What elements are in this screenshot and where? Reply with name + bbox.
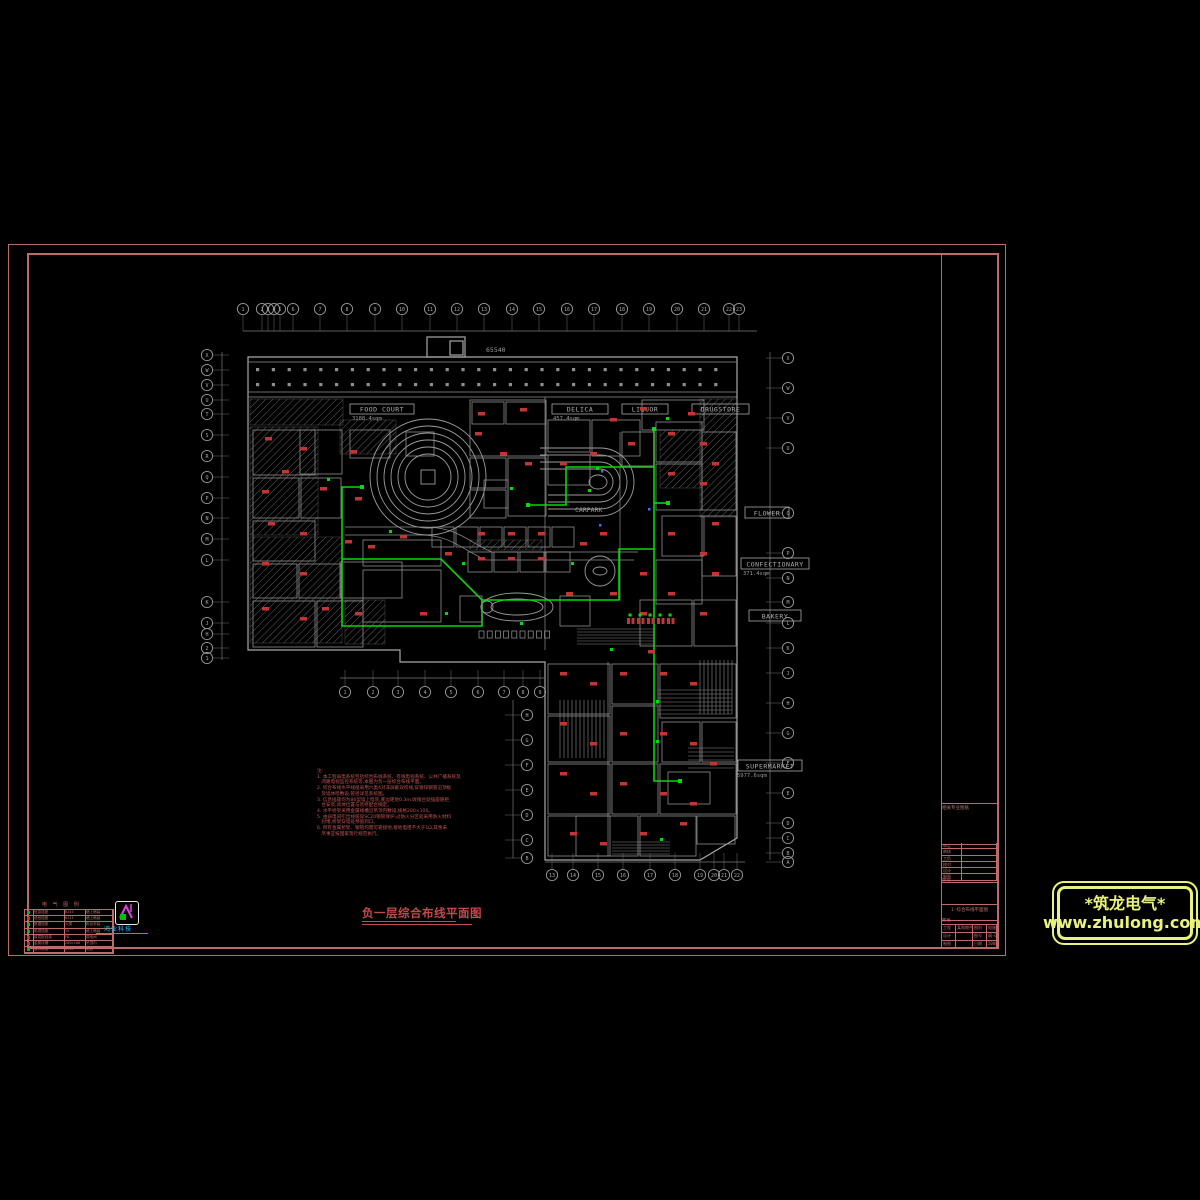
legend-symbol (27, 917, 30, 920)
plan-text: 65540 (486, 346, 506, 354)
titleblock-row: 设计图号弱-01 (942, 933, 997, 941)
svg-text:5: 5 (449, 690, 452, 696)
svg-text:A: A (786, 860, 789, 866)
legend-symbol (27, 923, 30, 926)
zhulong-url: www.zhulong.com (1043, 913, 1200, 932)
svg-text:22: 22 (726, 307, 732, 313)
titleblock-row: 工程某购物中心图别电施 (942, 925, 997, 933)
svg-text:2: 2 (205, 646, 208, 652)
legend-table: 信息插座RJ45墙上暗装语音插座RJ11墙上暗装数据插座六类柜台安装电视插座TV… (24, 909, 114, 954)
legend-symbol (27, 942, 30, 945)
svg-text:M: M (205, 537, 208, 543)
title-block-empty (942, 253, 997, 804)
zhulong-brand: *筑龙电气* (1085, 894, 1166, 913)
svg-text:G: G (525, 738, 528, 744)
svg-text:N: N (205, 516, 208, 522)
svg-text:10: 10 (399, 307, 405, 313)
store-label: DELICA (567, 406, 593, 414)
svg-text:N: N (786, 576, 789, 582)
svg-text:12: 12 (454, 307, 460, 313)
plan-text: CARPARK (575, 506, 602, 514)
svg-text:21: 21 (721, 873, 727, 879)
svg-text:7: 7 (318, 307, 321, 313)
floor-plan-canvas: 1234567891011121314151617181920212223XWV… (0, 0, 1200, 1200)
legend-symbol (27, 936, 30, 939)
store-area: 3188.4sqm (352, 416, 382, 422)
drawing-title: 负一层综合布线平面图 (362, 905, 482, 921)
store-label: CONFECTIONARY (746, 561, 803, 569)
svg-text:H: H (205, 632, 208, 638)
dock-band (248, 362, 737, 397)
svg-text:9: 9 (538, 690, 541, 696)
legend-symbol (27, 948, 30, 951)
svg-text:16: 16 (620, 873, 626, 879)
svg-text:20: 20 (674, 307, 680, 313)
svg-text:17: 17 (647, 873, 653, 879)
title-block-bottom: 工程某购物中心图别电施设计图号弱-01制图日期2008.6 (942, 925, 997, 948)
svg-text:J: J (786, 671, 789, 677)
svg-text:15: 15 (595, 873, 601, 879)
svg-text:W: W (786, 386, 790, 392)
title-block-section: 相关专业图纸 (942, 804, 997, 845)
svg-text:20: 20 (711, 873, 717, 879)
zhulong-logo-inner: *筑龙电气* www.zhulong.com (1057, 886, 1193, 940)
legend-title: 电 气 图 例 (42, 901, 81, 908)
svg-text:11: 11 (427, 307, 433, 313)
svg-text:X: X (205, 353, 208, 359)
store-label: BAKERY (762, 613, 788, 621)
svg-text:F: F (525, 763, 528, 769)
vendor-logo (115, 901, 139, 925)
svg-text:1: 1 (343, 690, 346, 696)
svg-text:14: 14 (509, 307, 515, 313)
legend-symbol (27, 911, 30, 914)
title-underline (362, 921, 456, 922)
dwg-name: 1-综合布线平面图 (951, 908, 988, 913)
svg-text:Q: Q (205, 475, 208, 481)
svg-text:16: 16 (564, 307, 570, 313)
svg-text:D: D (525, 813, 528, 819)
svg-text:9: 9 (373, 307, 376, 313)
vendor-name: 鸿业科技 (104, 924, 132, 933)
title-block-name-label: 图名 (942, 918, 997, 925)
title-block-blank (942, 883, 997, 905)
legend-symbol (27, 930, 30, 933)
title-underline (362, 924, 472, 925)
title-block-signoff: 审定审核工负校对设计制图 (942, 843, 997, 881)
svg-text:1: 1 (241, 307, 244, 313)
svg-text:15: 15 (536, 307, 542, 313)
plan-texts: CARPARK65540 (486, 346, 602, 514)
svg-text:6: 6 (291, 307, 294, 313)
svg-text:8: 8 (521, 690, 524, 696)
svg-text:7: 7 (502, 690, 505, 696)
shelving-blocks (560, 629, 734, 854)
svg-text:23: 23 (736, 307, 742, 313)
vendor-underline (96, 933, 148, 934)
svg-text:K: K (205, 600, 208, 606)
svg-text:18: 18 (672, 873, 678, 879)
svg-text:S: S (205, 433, 208, 439)
svg-text:L: L (205, 558, 208, 564)
name-label: 图名 (942, 918, 951, 923)
note-line: 6. 所有金属桥架、钢管均需可靠接地,接地电阻不大于1Ω,其余未 (317, 826, 467, 832)
store-area: 457.4sqm (553, 416, 580, 422)
store-area: 371.4sqm (743, 571, 770, 577)
svg-text:6: 6 (476, 690, 479, 696)
svg-text:B: B (525, 856, 528, 862)
store-label: FLOWER (754, 510, 780, 518)
svg-text:H: H (786, 701, 789, 707)
svg-text:D: D (786, 821, 789, 827)
svg-text:18: 18 (619, 307, 625, 313)
svg-text:X: X (786, 356, 789, 362)
svg-text:3: 3 (396, 690, 399, 696)
svg-text:J: J (205, 621, 208, 627)
wiring-routes (342, 429, 680, 781)
svg-text:U: U (205, 398, 208, 404)
svg-text:5: 5 (278, 307, 281, 313)
zhulong-logo: *筑龙电气* www.zhulong.com (1052, 881, 1198, 945)
svg-text:1: 1 (205, 656, 208, 662)
svg-text:8: 8 (345, 307, 348, 313)
store-label: SUPERMARKET (746, 763, 795, 771)
store-area: 5977.6sqm (737, 773, 767, 779)
svg-text:17: 17 (591, 307, 597, 313)
svg-text:14: 14 (570, 873, 576, 879)
svg-text:M: M (786, 600, 789, 606)
svg-text:T: T (205, 412, 208, 418)
svg-text:22: 22 (734, 873, 740, 879)
store-label: FOOD COURT (360, 406, 404, 414)
svg-text:V: V (786, 416, 789, 422)
column-circle (585, 556, 615, 586)
svg-text:E: E (786, 791, 789, 797)
section-label: 相关专业图纸 (942, 806, 969, 811)
note-line: 2. 综合布线水平线缆采用六类4对非屏蔽双绞线,穿镀锌钢管沿顶板 (317, 786, 467, 792)
svg-text:21: 21 (701, 307, 707, 313)
svg-text:13: 13 (549, 873, 555, 879)
store-labels: FOOD COURT3188.4sqmDELICA457.4sqmLIQUORD… (350, 404, 809, 779)
legend-row: 镀锌钢管SC20暗敷 (25, 947, 113, 953)
store-label: DRUGSTORE (701, 406, 741, 414)
general-notes: 注:1. 本工程弱电系统包括综合布线系统、有线电视系统、公共广播系统及 闭路电视… (317, 769, 467, 837)
escalator-core (481, 593, 553, 621)
svg-text:K: K (786, 646, 789, 652)
svg-text:U: U (786, 446, 789, 452)
svg-text:H: H (525, 713, 528, 719)
svg-text:13: 13 (481, 307, 487, 313)
titleblock-row: 制图日期2008.6 (942, 941, 997, 949)
svg-text:P: P (205, 496, 208, 502)
svg-text:E: E (525, 788, 528, 794)
svg-text:W: W (205, 368, 209, 374)
svg-text:P: P (786, 551, 789, 557)
svg-text:19: 19 (646, 307, 652, 313)
svg-text:4: 4 (423, 690, 426, 696)
svg-text:C: C (525, 838, 528, 844)
svg-text:G: G (786, 731, 789, 737)
note-line: 尽事宜按国家现行规范执行。 (317, 832, 467, 838)
svg-text:2: 2 (371, 690, 374, 696)
vendor-logo-glyph (116, 902, 138, 924)
svg-text:19: 19 (697, 873, 703, 879)
svg-text:C: C (786, 836, 789, 842)
svg-text:R: R (205, 454, 209, 460)
svg-text:L: L (786, 621, 789, 627)
svg-text:B: B (786, 851, 789, 857)
svg-text:V: V (205, 383, 208, 389)
